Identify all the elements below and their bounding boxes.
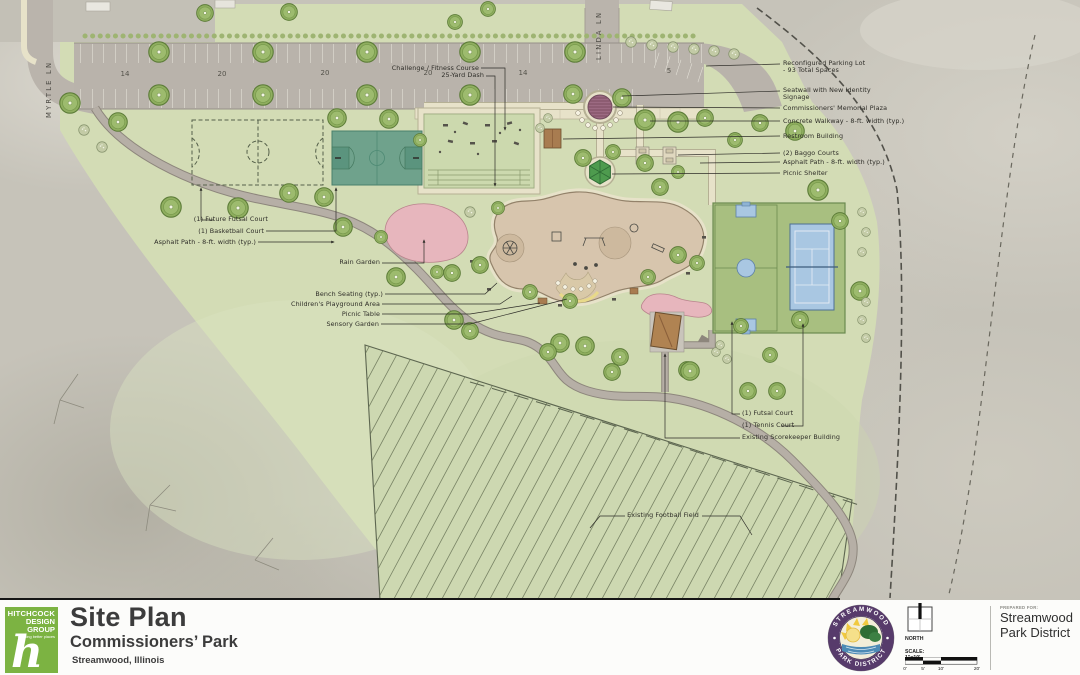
shrub-icon <box>626 37 637 48</box>
tree-icon <box>576 337 595 356</box>
tree-icon <box>462 323 479 340</box>
tree-icon <box>328 109 347 128</box>
tree-icon <box>430 265 443 278</box>
tree-icon <box>612 349 629 366</box>
tree-icon <box>523 285 538 300</box>
tree-icon <box>565 42 585 62</box>
tree-icon <box>652 179 669 196</box>
tree-icon <box>280 184 299 203</box>
tree-icon <box>448 15 463 30</box>
tree-icon <box>540 344 557 361</box>
tree-icon <box>109 113 128 132</box>
shrub-icon <box>647 40 658 51</box>
tree-icon <box>832 213 849 230</box>
shrub-icon <box>858 248 867 257</box>
tree-icon <box>357 42 377 62</box>
sheet-title: Site Plan <box>70 602 187 633</box>
tree-icon <box>281 4 298 21</box>
tree-icon <box>786 122 805 141</box>
tree-icon <box>460 42 480 62</box>
tree-icon <box>149 42 169 62</box>
shrub-icon <box>862 228 871 237</box>
tree-icon <box>641 270 656 285</box>
tree-icon <box>681 362 700 381</box>
tree-icon <box>387 268 406 287</box>
shrub-icon <box>858 208 867 217</box>
tree-icon <box>697 110 714 127</box>
tree-icon <box>728 133 743 148</box>
tree-icon <box>670 247 687 264</box>
shrub-icon <box>716 341 725 350</box>
scorekeeper-building <box>650 312 684 352</box>
restroom-building <box>544 129 561 148</box>
shrub-icon <box>97 142 108 153</box>
shrub-icon <box>689 44 700 55</box>
client-name-line: Streamwood <box>1000 610 1073 625</box>
tree-icon <box>635 110 655 130</box>
titlebar-divider <box>990 606 991 670</box>
tree-icon <box>149 85 169 105</box>
north-arrow-icon <box>905 603 935 633</box>
project-name: Commissioners’ Park <box>70 633 238 652</box>
tree-icon <box>197 5 214 22</box>
shrub-icon <box>862 298 871 307</box>
tree-icon <box>734 319 749 334</box>
shrub-icon <box>544 114 553 123</box>
tree-icon <box>315 188 334 207</box>
tree-icon <box>808 180 828 200</box>
tree-icon <box>444 265 461 282</box>
tree-icon <box>413 133 426 146</box>
shrub-icon <box>723 355 732 364</box>
shrub-icon <box>536 124 545 133</box>
shrub-icon <box>465 207 476 218</box>
tree-icon <box>491 201 504 214</box>
shrub-icon <box>709 46 720 57</box>
shrub-icon <box>668 42 679 53</box>
tree-icon <box>752 115 769 132</box>
basketball-court <box>332 131 422 185</box>
scale-tick: 5' <box>921 667 925 672</box>
north-arrow-block: NORTH SCALE: 1"=10' 0' 5' 10' 20' <box>905 603 935 638</box>
park-district-seal: STREAMWOOD PARK DISTRICT <box>827 604 895 672</box>
tree-icon <box>161 197 181 217</box>
tree-icon <box>357 85 377 105</box>
tree-icon <box>253 85 273 105</box>
north-label: NORTH <box>905 636 923 642</box>
hitchcock-design-group-logo: HITCHCOCK DESIGN GROUP creating better p… <box>5 607 58 673</box>
tree-icon <box>481 2 496 17</box>
tree-icon <box>604 364 621 381</box>
sport-courts <box>713 202 845 334</box>
tree-icon <box>606 145 621 160</box>
tree-icon <box>769 383 786 400</box>
tree-icon <box>380 110 399 129</box>
scale-bar <box>905 657 981 665</box>
tree-icon <box>740 383 757 400</box>
tree-icon <box>668 112 688 132</box>
shrub-icon <box>79 125 90 136</box>
tree-icon <box>445 311 464 330</box>
tree-icon <box>637 155 654 172</box>
logo-glyph: h <box>11 631 43 673</box>
tree-icon <box>460 85 480 105</box>
tree-icon <box>253 42 273 62</box>
tree-icon <box>575 150 592 167</box>
title-bar: HITCHCOCK DESIGN GROUP creating better p… <box>0 600 1080 675</box>
tennis-court <box>786 224 838 310</box>
tree-icon <box>763 348 778 363</box>
shrub-icon <box>729 49 740 60</box>
tree-icon <box>564 85 583 104</box>
tree-icon <box>374 230 387 243</box>
scale-tick: 0' <box>903 667 907 672</box>
scale-tick: 20' <box>974 667 980 672</box>
tree-icon <box>613 89 632 108</box>
site-plan-canvas <box>0 0 1080 600</box>
shrub-icon <box>858 316 867 325</box>
tree-icon <box>563 294 578 309</box>
project-location: Streamwood, Illinois <box>72 655 164 666</box>
tree-icon <box>334 218 353 237</box>
fitness-course <box>424 114 534 188</box>
tree-icon <box>60 93 80 113</box>
tree-icon <box>792 312 809 329</box>
scale-tick: 10' <box>938 667 944 672</box>
tree-icon <box>472 257 489 274</box>
shrub-icon <box>862 334 871 343</box>
client-name-line: Park District <box>1000 625 1073 640</box>
tree-icon <box>671 165 684 178</box>
tree-icon <box>690 256 705 271</box>
tree-icon <box>228 198 248 218</box>
prepared-for-block: PREPARED FOR: Streamwood Park District <box>1000 605 1073 640</box>
site-plan-sheet: Reconfigured Parking Lot - 93 Total Spac… <box>0 0 1080 675</box>
